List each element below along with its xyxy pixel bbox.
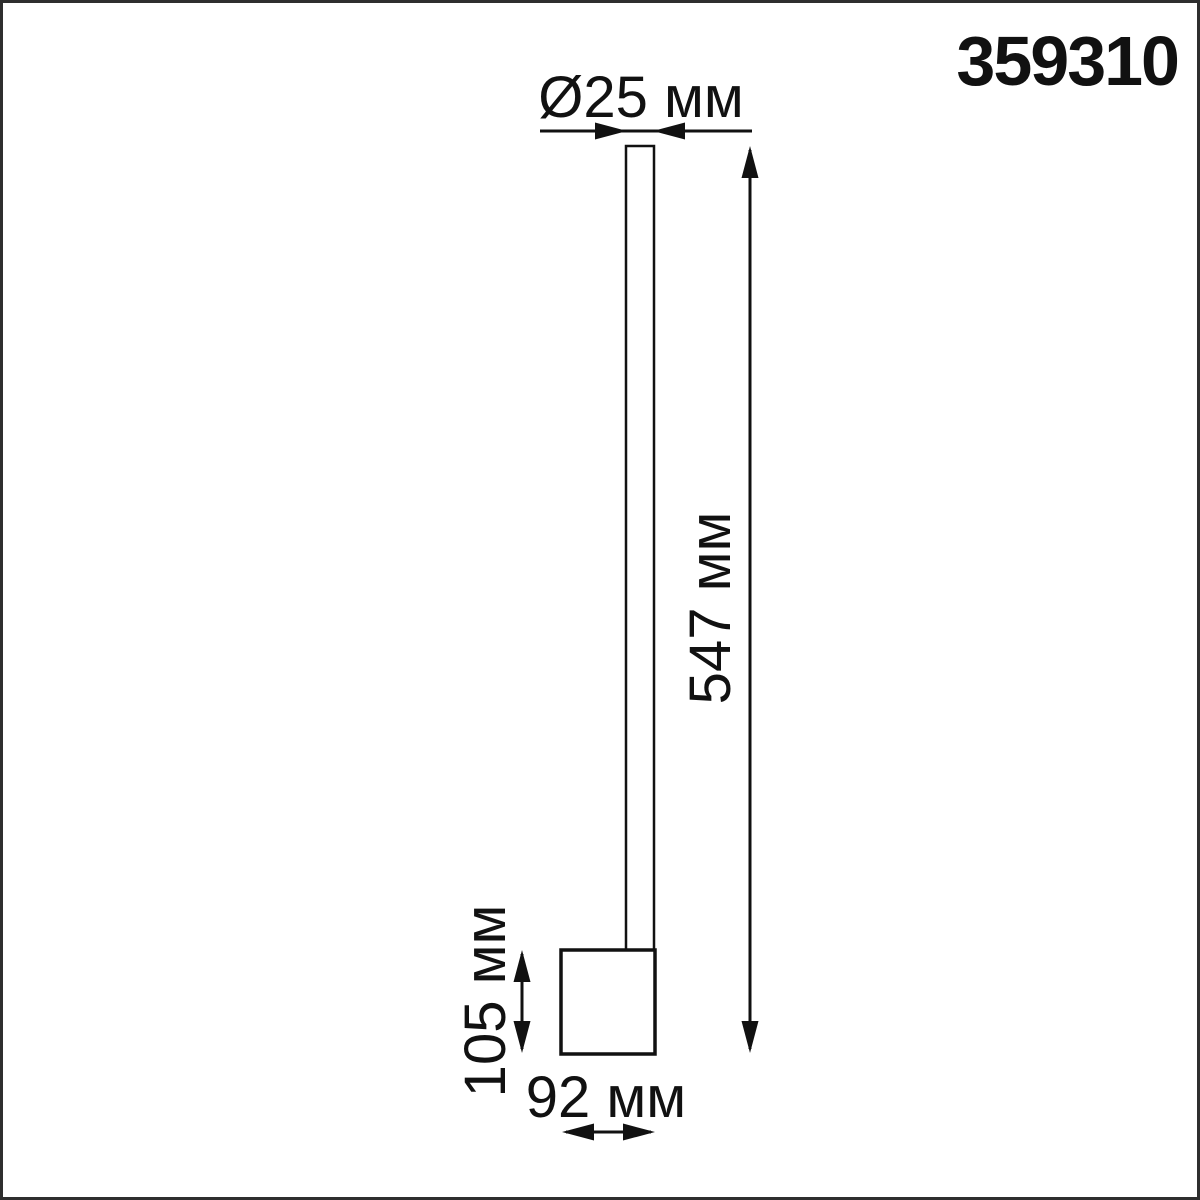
height-dimension-label: 547 мм [678,512,743,705]
arrowhead-down-icon [742,1021,759,1053]
diameter-dimension-label: Ø25 мм [538,65,744,130]
base-height-dimension-label: 105 мм [453,905,518,1098]
base-width-dimension-label: 92 мм [526,1065,686,1130]
lamp-tube [626,146,654,950]
dimension-drawing: 359310 Ø25 мм 547 мм 105 мм [0,0,1200,1200]
arrowhead-up-icon [742,146,759,178]
product-code: 359310 [956,22,1178,100]
product-dimension-diagram: 359310 Ø25 мм 547 мм 105 мм [0,0,1200,1200]
lamp-base [561,950,655,1054]
height-dimension-line [742,146,759,1053]
